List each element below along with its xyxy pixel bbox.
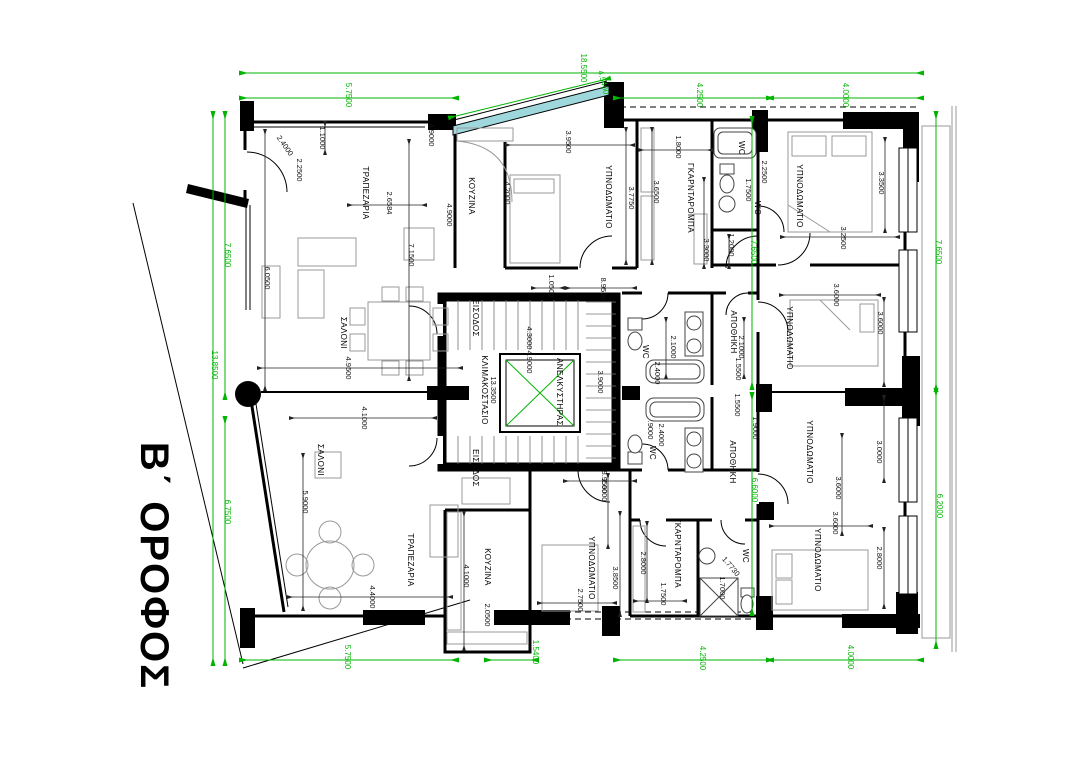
dimension-label: 4.9000 — [427, 124, 436, 147]
room-label: ΕΙΣΟΔΟΣ — [471, 449, 480, 487]
dimension-label: 3.6000 — [831, 512, 840, 535]
dimension-label: 7.1500 — [407, 244, 416, 267]
room-label: ΚΟΥΖΙΝΑ — [467, 177, 476, 215]
dimension-label: 4.9500 — [344, 357, 353, 380]
dimension-label: 2.4000 — [275, 134, 296, 158]
dimension-label: 2.8000 — [639, 552, 648, 575]
dimension-label: 3.8500 — [611, 567, 620, 590]
green-dimension-label: 6.6000 — [750, 478, 759, 503]
dimension-label: 2.2500 — [295, 159, 304, 182]
room-label: ΑΠΟΘΗΚΗ — [729, 310, 738, 353]
room-label: ΤΡΑΠΕΖΑΡΙΑ — [406, 533, 415, 586]
dimension-label: 1.7500 — [744, 179, 753, 202]
dimension-label: 6.0500 — [263, 267, 272, 290]
dimension-label: 1.7500 — [659, 583, 668, 606]
room-label: ΥΠΝΟΔΩΜΑΤΙΟ — [795, 164, 804, 227]
room-label: ΑΝΕΛΚΥΣΤΗΡΑΣ — [555, 358, 564, 426]
slanted-glazing — [450, 81, 609, 135]
angled-wall — [186, 184, 249, 208]
green-dimension-label: 18.5500 — [579, 54, 588, 83]
dimension-label: 3.6000 — [832, 284, 841, 307]
green-dimension-label: 5.7500 — [343, 645, 352, 670]
column — [235, 381, 261, 407]
green-dimension-label: 1.5400 — [531, 640, 540, 665]
green-dimension-label: 5.7500 — [344, 83, 353, 108]
green-dimension-label: 7.6500 — [934, 240, 943, 265]
dimension-label: 4.9000 — [445, 204, 454, 227]
green-dimension-label: 4.2500 — [695, 83, 704, 108]
room-label: WC — [648, 446, 657, 460]
green-dimension-label: 4.0000 — [841, 83, 850, 108]
room-label: WC — [753, 201, 762, 215]
floor-plan-page: ΤΡΑΠΕΖΑΡΙΑΚΟΥΖΙΝΑΣΑΛΟΝΙΣΑΛΟΝΙΤΡΑΠΕΖΑΡΙΑΚ… — [0, 0, 1086, 768]
property-lines — [133, 184, 470, 668]
room-label: ΥΠΝΟΔΩΜΑΤΙΟ — [587, 536, 596, 599]
room-label: ΥΠΝΟΔΩΜΑΤΙΟ — [785, 306, 794, 369]
dimension-label: 2.1000 — [737, 336, 746, 359]
dimension-label: 3.3500 — [877, 172, 886, 195]
dimension-label: 3.2500 — [839, 227, 848, 250]
dimension-label: 4.3000 — [525, 327, 534, 350]
dimension-label: 4.1000 — [462, 565, 471, 588]
room-label: ΣΑΛΟΝΙ — [339, 317, 348, 349]
room-label: ΤΡΑΠΕΖΑΡΙΑ — [361, 166, 370, 219]
dimension-label: 2.4000 — [657, 424, 666, 447]
dimension-label: 3.6000 — [876, 312, 885, 335]
dimension-label: 1.5500 — [734, 358, 743, 381]
dimension-label: 3.3000 — [702, 239, 711, 262]
green-dimension-label: 7.6500 — [749, 240, 758, 265]
elevator — [500, 354, 580, 432]
dimension-label: 2.4000 — [653, 362, 662, 385]
dimension-label: .9000 — [646, 421, 655, 440]
dimension-label: 3.9000 — [596, 371, 605, 394]
dimension-label: 2.8000 — [875, 547, 884, 570]
room-label: WC — [741, 549, 750, 563]
dimension-label: 4.1000 — [360, 407, 369, 430]
room-label: WC — [737, 141, 746, 155]
dimension-label: 4.9000 — [525, 351, 534, 374]
dimension-label: 1.1000 — [318, 127, 327, 150]
dimension-label: 2.1000 — [669, 336, 678, 359]
dimension-label: 13.3500 — [489, 376, 498, 403]
green-dimension-label: 13.8500 — [210, 351, 219, 380]
room-label: ΥΠΝΟΔΩΜΑΤΙΟ — [813, 528, 822, 591]
green-dimension-label: 6.7500 — [223, 500, 232, 525]
dimension-label: 1.0500 — [547, 275, 556, 298]
room-label: ΕΙΣΟΔΟΣ — [471, 299, 480, 337]
dimension-label: 4.2000 — [503, 182, 512, 205]
dimension-label: 1.7000 — [718, 577, 727, 600]
green-dimension-label: 4.0000 — [846, 645, 855, 670]
room-label: ΚΛΙΜΑΚΟΣΤΑΣΙΟ — [480, 355, 489, 424]
dimension-label: 1.8000 — [674, 136, 683, 159]
room-label: ΑΠΟΘΗΚΗ — [728, 440, 737, 483]
floor-plan-drawing: ΤΡΑΠΕΖΑΡΙΑΚΟΥΖΙΝΑΣΑΛΟΝΙΣΑΛΟΝΙΤΡΑΠΕΖΑΡΙΑΚ… — [0, 0, 1086, 768]
green-dimension-label: 7.6500 — [223, 243, 232, 268]
dimension-label: 3.6000 — [834, 477, 843, 500]
dimension-label: 3.0000 — [875, 441, 884, 464]
dimension-label: 1.9000 — [751, 417, 760, 440]
dimension-label: 1.7730 — [720, 555, 742, 578]
stair-core — [433, 297, 616, 467]
dimension-label: 8.9500 — [599, 278, 608, 301]
dimension-label: 1.5500 — [733, 394, 742, 417]
dimension-label: 3.9500 — [564, 131, 573, 154]
dimension-label: 2.2500 — [760, 161, 769, 184]
room-label: ΓΚΑΡΝΤΑΡΟΜΠΑ — [673, 518, 682, 588]
dimension-label: 3.7750 — [627, 187, 636, 210]
room-label: ΚΟΥΖΙΝΑ — [483, 548, 492, 586]
dimension-label: 1.2000 — [727, 234, 736, 257]
room-label: ΓΚΑΡΝΤΑΡΟΜΠΑ — [686, 163, 695, 233]
room-label: WC — [641, 345, 650, 359]
room-label: ΥΠΝΟΔΩΜΑΤΙΟ — [604, 165, 613, 228]
room-label: ΣΑΛΟΝΙ — [316, 444, 325, 476]
dimension-label: 2.6000 — [600, 479, 609, 502]
dimension-label: 2.7500 — [576, 589, 585, 612]
room-label: ΥΠΝΟΔΩΜΑΤΙΟ — [805, 420, 814, 483]
green-dimension-label: 6.2000 — [935, 494, 944, 519]
dimension-label: 5.9000 — [301, 491, 310, 514]
dimension-label: 4.4000 — [368, 586, 377, 609]
dimension-label: 3.6500 — [652, 181, 661, 204]
green-dimension-label: 4.2500 — [698, 646, 707, 671]
dimension-label: 2.0500 — [483, 604, 492, 627]
floor-title: Β΄ ΟΡΟΦΟΣ — [132, 442, 176, 690]
dimension-label: 2.6584 — [385, 192, 394, 215]
